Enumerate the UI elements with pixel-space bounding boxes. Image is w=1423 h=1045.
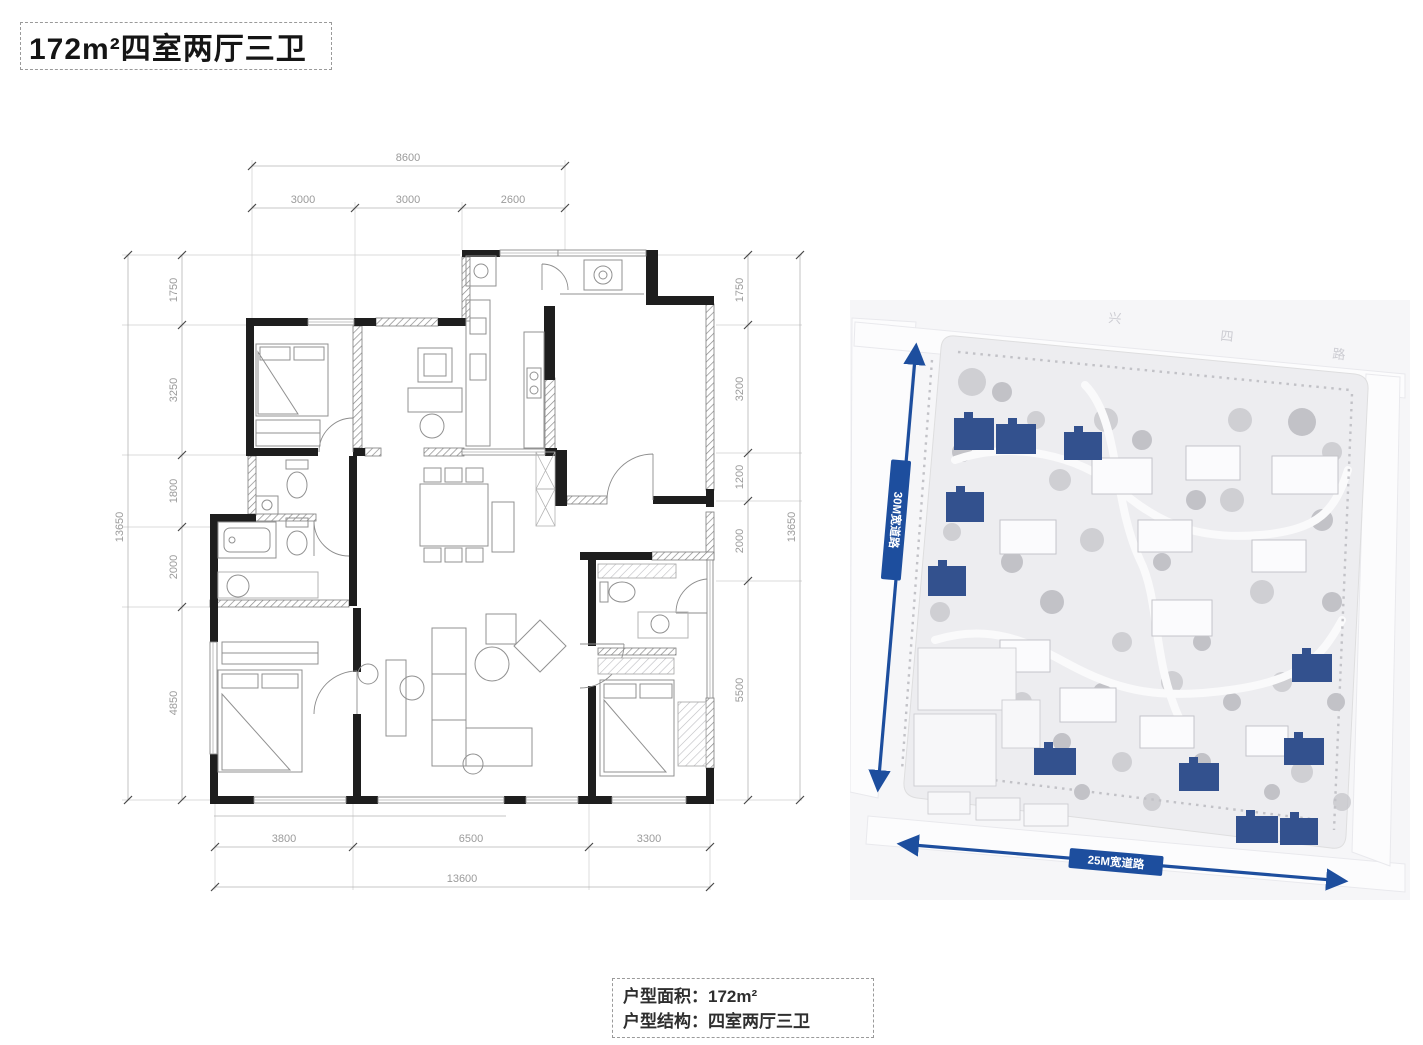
site-plan: 兴 四 路 30M宽道路 25M宽道路 (850, 300, 1410, 900)
dim-right-total: 13650 (786, 512, 798, 543)
floor-plan-hatched-walls (210, 257, 714, 768)
dim-left-1: 1750 (168, 278, 180, 302)
floor-plan: 8600 3000 3000 2600 13650 1750 3250 1800… (95, 128, 820, 903)
page-title-box: 172m²四室两厅三卫 (20, 22, 332, 70)
dim-left-4: 2000 (168, 555, 180, 579)
dim-left-2: 3250 (168, 378, 180, 402)
dim-bottom-1: 3800 (272, 833, 296, 845)
unit-structure-row: 户型结构：四室两厅三卫 (623, 1009, 863, 1034)
street-char-1: 兴 (1108, 310, 1123, 326)
dim-right-2: 3200 (734, 377, 746, 401)
door-swings (314, 264, 707, 714)
dim-bottom-2: 6500 (459, 833, 483, 845)
page-title: 172m²四室两厅三卫 (29, 24, 307, 68)
floor-plan-windows (210, 250, 713, 816)
dim-right-5: 5500 (734, 678, 746, 702)
dim-left-5: 4850 (168, 691, 180, 715)
dim-top-2: 3000 (396, 194, 420, 206)
dim-top-3: 2600 (501, 194, 525, 206)
dim-right-3: 1200 (734, 465, 746, 489)
street-char-2: 四 (1220, 328, 1235, 344)
dim-left-3: 1800 (168, 479, 180, 503)
dim-top-1: 3000 (291, 194, 315, 206)
unit-structure-value: 四室两厅三卫 (708, 1012, 810, 1031)
shaft-boxes (536, 452, 555, 526)
dim-right-4: 2000 (734, 529, 746, 553)
unit-area-row: 户型面积：172m² (623, 984, 863, 1009)
dim-bottom-total: 13600 (447, 873, 478, 885)
unit-area-value: 172m² (708, 987, 757, 1006)
dim-right-1: 1750 (734, 278, 746, 302)
closet-strips (598, 564, 706, 766)
unit-info-table: 户型面积：172m² 户型结构：四室两厅三卫 (612, 978, 874, 1038)
dim-top-total: 8600 (396, 152, 420, 164)
street-char-3: 路 (1332, 346, 1347, 362)
unit-structure-label: 户型结构： (623, 1012, 708, 1031)
unit-area-label: 户型面积： (623, 987, 708, 1006)
dim-bottom-3: 3300 (637, 833, 661, 845)
dim-left-total: 13650 (114, 512, 126, 543)
